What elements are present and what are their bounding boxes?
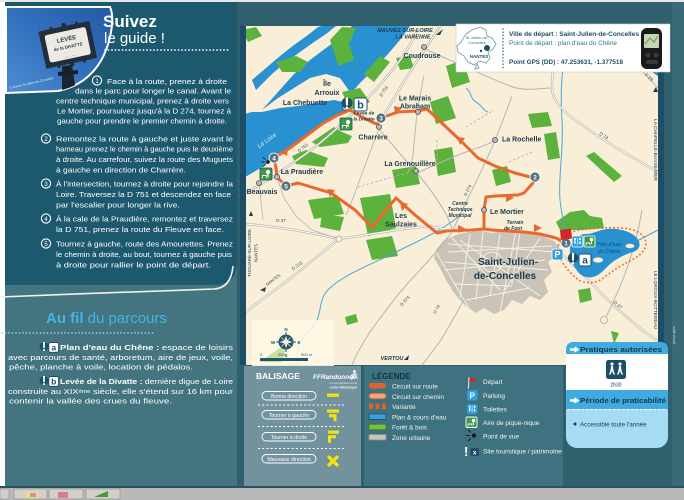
- svg-text:à gauche en direction de Charr: à gauche en direction de Charrère.: [56, 166, 186, 175]
- svg-text:Pratiques autorisées: Pratiques autorisées: [580, 345, 662, 354]
- svg-text:Beauvais: Beauvais: [247, 189, 278, 196]
- svg-text:P: P: [470, 392, 476, 401]
- svg-text:P: P: [554, 250, 560, 260]
- svg-text:1: 1: [564, 241, 568, 248]
- svg-text:Point de vue: Point de vue: [483, 434, 520, 441]
- svg-text:!: !: [464, 444, 468, 459]
- svg-text:Au fil du parcours: Au fil du parcours: [46, 310, 167, 327]
- svg-text:centre technique municipal, pr: centre technique municipal, prenez à dro…: [56, 97, 229, 106]
- svg-text:Variante: Variante: [392, 404, 416, 411]
- svg-text:La Chebuette: La Chebuette: [283, 100, 327, 107]
- svg-text:du Chêne: du Chêne: [598, 249, 621, 255]
- svg-text:le chemin à droite, au bout, t: le chemin à droite, au bout, tournez à g…: [56, 250, 232, 259]
- svg-text:2: 2: [533, 175, 537, 182]
- svg-text:S: S: [284, 353, 287, 358]
- svg-text:LA VARENNE: LA VARENNE: [395, 35, 430, 41]
- svg-text:Coudrouse: Coudrouse: [404, 53, 441, 60]
- svg-text:!: !: [42, 373, 46, 388]
- svg-text:Comité départemental: Comité départemental: [329, 381, 357, 385]
- svg-text:La Grenouillère: La Grenouillère: [384, 161, 435, 168]
- svg-text:Point GPS (DD) : 47.253631, -1: Point GPS (DD) : 47.253631, -1.377518: [509, 59, 623, 66]
- svg-text:VERTOU: VERTOU: [381, 356, 405, 362]
- svg-text:À la cale de la Praudière, rem: À la cale de la Praudière, remontez et t…: [56, 215, 233, 224]
- svg-text:Remontez la route à gauche et: Remontez la route à gauche et juste avan…: [56, 135, 233, 144]
- svg-text:a: a: [582, 256, 588, 267]
- svg-text:Ville de départ : Saint-Julien: Ville de départ : Saint-Julien-de-Concel…: [509, 31, 639, 38]
- svg-text:Tourner à gauche: Tourner à gauche: [269, 413, 309, 419]
- svg-text:BALISAGE: BALISAGE: [256, 371, 300, 381]
- svg-text:la Divatte: la Divatte: [353, 117, 375, 123]
- svg-text:Plan & cours d'eau: Plan & cours d'eau: [392, 414, 447, 421]
- svg-text:NANTES: NANTES: [470, 54, 489, 59]
- svg-text:À l'intersection, tournez à dr: À l'intersection, tournez à droite pour …: [56, 180, 234, 189]
- svg-text:LÉGENDE: LÉGENDE: [372, 372, 411, 381]
- svg-text:250: 250: [278, 352, 285, 357]
- svg-text:Aire de pique-nique: Aire de pique-nique: [483, 420, 540, 427]
- svg-text:avec parcours de santé, arbore: avec parcours de santé, arboretum, aire …: [8, 353, 233, 362]
- svg-text:x: x: [473, 450, 477, 457]
- svg-text:à droite pour rallier le point: à droite pour rallier le point de départ…: [56, 261, 211, 270]
- svg-text:!: !: [344, 94, 350, 113]
- svg-text:b: b: [357, 100, 364, 112]
- svg-text:Toilettes: Toilettes: [483, 407, 508, 414]
- svg-text:Charrère: Charrère: [358, 135, 387, 142]
- svg-text:a: a: [51, 342, 56, 352]
- svg-text:la D 751, prenez la route du F: la D 751, prenez la route du Fleuve en f…: [56, 225, 224, 234]
- svg-text:500 m: 500 m: [301, 352, 313, 357]
- svg-text:THOUARÉ-SUR-LOIRE: THOUARÉ-SUR-LOIRE: [246, 229, 252, 277]
- svg-text:Départ: Départ: [483, 379, 503, 386]
- svg-text:La Praudière: La Praudière: [281, 169, 324, 176]
- svg-text:3: 3: [379, 116, 383, 123]
- svg-text:Parking: Parking: [483, 393, 505, 400]
- svg-text:Levée de la Divatte : dernière: Levée de la Divatte : dernière digue de …: [60, 377, 233, 386]
- svg-text:Suivez: Suivez: [103, 12, 157, 31]
- svg-text:de Foot: de Foot: [504, 226, 522, 232]
- svg-text:Forêt & bois: Forêt & bois: [392, 425, 428, 432]
- svg-text:2h30: 2h30: [610, 383, 621, 389]
- svg-text:!: !: [42, 339, 46, 354]
- svg-text:dans le parc pour longer le ca: dans le parc pour longer le canal. Avant…: [75, 87, 231, 96]
- svg-text:gauche pour prendre le premier: gauche pour prendre le premier chemin à …: [57, 117, 227, 126]
- svg-text:La Rochelle: La Rochelle: [502, 137, 541, 144]
- svg-text:b: b: [51, 376, 56, 386]
- svg-text:Plan d'eau du Chêne : espace d: Plan d'eau du Chêne : espace de loisirs: [60, 343, 233, 352]
- svg-text:Circuit sur route: Circuit sur route: [392, 384, 438, 391]
- svg-text:Île: Île: [322, 79, 331, 88]
- svg-text:Tournez à gauche, route des Am: Tournez à gauche, route des Amourettes. …: [56, 240, 233, 249]
- svg-text:4: 4: [272, 156, 276, 163]
- svg-text:contenir la vallée des crues d: contenir la vallée des crues du fleuve.: [9, 397, 172, 406]
- svg-text:Municipal: Municipal: [448, 213, 472, 219]
- svg-text:LA CHAPELLE-BASSE-MER: LA CHAPELLE-BASSE-MER: [652, 119, 658, 181]
- svg-text:D 37: D 37: [276, 218, 286, 223]
- svg-text:Accessible toute l'année: Accessible toute l'année: [580, 422, 647, 429]
- svg-text:Loire-Atlantique: Loire-Atlantique: [329, 386, 357, 390]
- svg-text:Tourner à droite: Tourner à droite: [271, 435, 307, 441]
- svg-text:de-Concelles: de-Concelles: [474, 271, 537, 282]
- svg-text:E: E: [297, 340, 300, 345]
- svg-text:MAUVES-SUR-LOIRE: MAUVES-SUR-LOIRE: [377, 28, 433, 34]
- svg-text:Site touristique / patrimoine: Site touristique / patrimoine: [483, 449, 562, 456]
- svg-text:Bonne direction: Bonne direction: [271, 394, 307, 400]
- svg-text:Point de départ : plan d'eau d: Point de départ : plan d'eau du Chêne: [509, 40, 617, 47]
- svg-text:FFRandonnée: FFRandonnée: [313, 374, 357, 381]
- svg-text:Concelles: Concelles: [468, 40, 486, 45]
- svg-text:Le Mortier, poursuivez jusqu'à: Le Mortier, poursuivez jusqu'à la D 274,…: [57, 107, 232, 116]
- svg-text:Plan d'eau: Plan d'eau: [597, 242, 622, 248]
- svg-text:Le Marais: Le Marais: [399, 96, 431, 103]
- svg-text:N: N: [284, 327, 287, 332]
- svg-text:LE LOROUX-BOTTEREAU: LE LOROUX-BOTTEREAU: [652, 271, 658, 330]
- svg-text:Le Mortier: Le Mortier: [490, 209, 524, 216]
- svg-text:Face à la route, prenez à droi: Face à la route, prenez à droite: [107, 77, 227, 86]
- svg-text:Arrouix: Arrouix: [315, 90, 340, 97]
- svg-text:Circuit sur chemin: Circuit sur chemin: [392, 394, 444, 401]
- svg-text:Loire. Traversez la D 751 et d: Loire. Traversez la D 751 et descendez e…: [56, 190, 231, 199]
- svg-text:5: 5: [284, 184, 288, 191]
- svg-text:par l'escalier pour longer la: par l'escalier pour longer la rive.: [56, 201, 180, 210]
- svg-text:Saulzaies: Saulzaies: [385, 222, 417, 229]
- svg-text:Zone urbaine: Zone urbaine: [392, 435, 431, 442]
- svg-text:Abraham: Abraham: [400, 104, 430, 111]
- svg-text:Les: Les: [395, 213, 407, 220]
- svg-text:NANTES: NANTES: [254, 244, 259, 262]
- svg-text:construite au XIXème siècle, e: construite au XIXème siècle, elle s'éten…: [8, 387, 234, 396]
- svg-text:Mauvaise direction: Mauvaise direction: [267, 457, 310, 463]
- svg-text:!: !: [570, 251, 575, 268]
- svg-text:Période de praticabilité: Période de praticabilité: [580, 396, 666, 405]
- svg-text:pêche, planche à voile, locati: pêche, planche à voile, location de péda…: [9, 363, 193, 372]
- svg-text:à droite. Au carrefour, suivez: à droite. Au carrefour, suivez la route …: [56, 155, 233, 164]
- svg-text:hameau prenez le chemin à gauc: hameau prenez le chemin à gauche puis le…: [56, 145, 233, 154]
- svg-text:Saint-Julien-: Saint-Julien-: [478, 257, 538, 268]
- svg-text:suite circuit :: suite circuit :: [672, 326, 676, 345]
- svg-text:le guide !: le guide !: [104, 30, 165, 47]
